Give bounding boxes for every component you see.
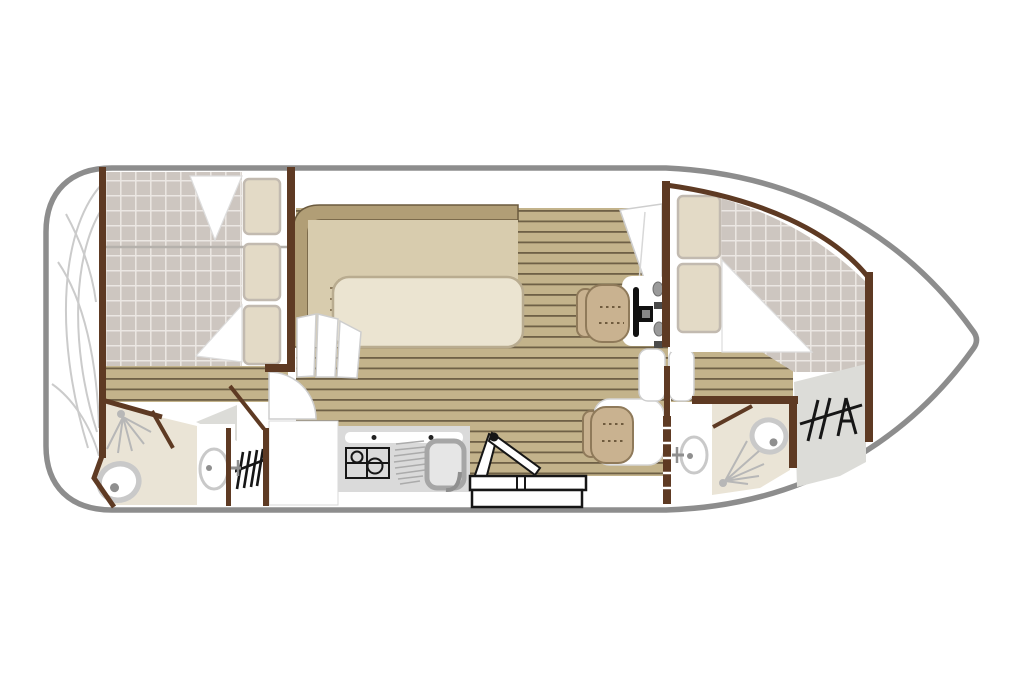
galley-wall	[263, 428, 269, 506]
wheel-hub-center	[642, 310, 650, 318]
door-post	[664, 366, 670, 416]
bathroom-wall	[789, 404, 797, 468]
pillow	[244, 244, 280, 300]
aft-cabin-wall	[99, 167, 106, 458]
saloon-side-deck	[294, 171, 668, 208]
floorplan-canvas	[0, 0, 1020, 680]
pillow	[244, 306, 280, 364]
pillow	[678, 264, 720, 332]
bathroom-wall	[692, 396, 798, 404]
aft-cabin	[105, 172, 288, 366]
pillow	[678, 196, 720, 258]
bow-steps-landing	[794, 364, 866, 487]
door-panel	[639, 349, 665, 401]
door-header	[265, 364, 295, 372]
steering-wheel	[633, 287, 639, 337]
dining-table	[333, 277, 523, 347]
bow-bulkhead	[865, 272, 873, 442]
dinette	[583, 399, 664, 465]
steps-wall	[226, 428, 231, 506]
pillow	[244, 179, 280, 234]
dinette-seat	[591, 407, 633, 463]
steps-floor	[794, 364, 866, 487]
door-panel	[669, 349, 694, 401]
refrigerator	[269, 421, 338, 505]
stove-knob	[372, 435, 377, 440]
saloon-wall	[287, 167, 295, 368]
boat-floorplan	[0, 0, 1020, 680]
bow-cabin-wall	[662, 181, 670, 347]
pilot-seat	[586, 285, 629, 342]
